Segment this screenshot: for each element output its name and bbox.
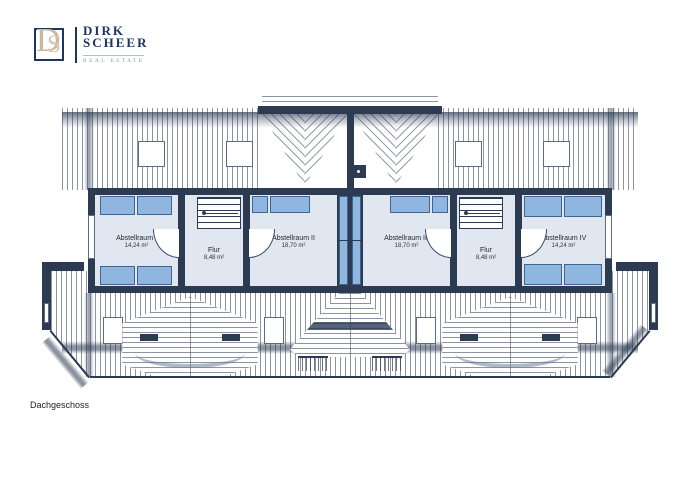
furniture-block — [390, 196, 430, 213]
furniture-block — [252, 196, 268, 213]
furniture-block — [564, 196, 602, 217]
skylight-window — [416, 317, 436, 344]
stair-walkline — [466, 213, 500, 214]
skylight-window — [138, 141, 165, 167]
furniture-block — [100, 196, 135, 215]
furniture-block — [564, 264, 602, 285]
gable-centerline — [350, 293, 351, 357]
window — [605, 215, 612, 259]
skylight-window — [543, 141, 570, 167]
furniture-block — [100, 266, 135, 285]
room-name: Flur — [457, 247, 515, 255]
dormer-ridge-lines — [262, 96, 438, 106]
shaft-divider — [339, 240, 361, 241]
roof-corner-shadow-bottom-left — [84, 293, 94, 377]
monogram-s-icon: S — [47, 28, 61, 61]
skylight-window — [226, 141, 253, 167]
furniture-block — [432, 196, 448, 213]
side-wall-window — [651, 303, 656, 323]
floor-title: Dachgeschoss — [30, 400, 89, 410]
logo-divider — [75, 27, 77, 63]
brand-logo: D S DIRK SCHEER REAL ESTATE — [34, 22, 164, 70]
ridge-shadow-band — [62, 112, 638, 128]
room-label: Flur 8,48 m² — [185, 247, 243, 262]
skylight-window — [455, 141, 482, 167]
furniture-block — [137, 266, 172, 285]
room-area: 8,48 m² — [457, 255, 515, 262]
room-area: 8,48 m² — [185, 255, 243, 262]
skylight-window — [264, 317, 284, 344]
chimney-flue-icon — [357, 170, 360, 173]
dormer-curved-sill — [455, 338, 565, 368]
entrance-post-left — [298, 356, 328, 371]
dormer-curved-sill — [135, 338, 245, 368]
stair-walkline — [204, 213, 238, 214]
brand-text: DIRK SCHEER REAL ESTATE — [83, 25, 148, 67]
entrance-post-right — [372, 356, 402, 371]
window — [88, 215, 95, 259]
side-wall-window — [44, 303, 49, 323]
furniture-block — [524, 196, 562, 217]
staircase-right — [459, 197, 503, 229]
skylight-window — [577, 317, 597, 344]
room-name: Flur — [185, 247, 243, 255]
furniture-block — [270, 196, 310, 213]
furniture-block — [137, 196, 172, 215]
skylight-window — [103, 317, 123, 344]
staircase-left — [197, 197, 241, 229]
chimney — [352, 165, 366, 178]
brand-tagline: REAL ESTATE — [83, 55, 144, 64]
room-label: Flur 8,48 m² — [457, 247, 515, 262]
eave-line-bottom — [90, 376, 610, 378]
furniture-block — [524, 264, 562, 285]
brand-name-line2: SCHEER — [83, 37, 148, 49]
